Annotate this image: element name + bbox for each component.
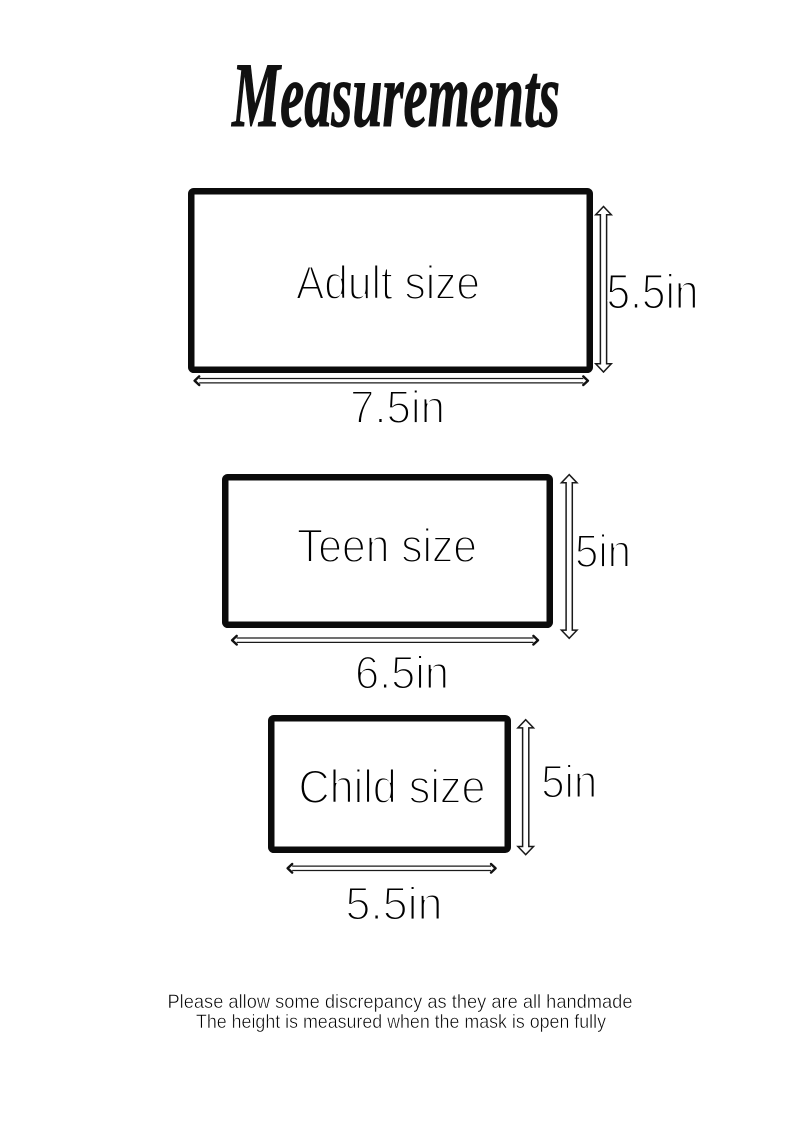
svg-text:5.5in: 5.5in bbox=[346, 878, 443, 930]
svg-text:5.5in: 5.5in bbox=[607, 266, 699, 320]
svg-text:Measurements: Measurements bbox=[231, 44, 560, 146]
svg-text:5in: 5in bbox=[541, 756, 597, 808]
svg-text:Please allow some discrepancy: Please allow some discrepancy as they ar… bbox=[168, 991, 633, 1013]
svg-text:7.5in: 7.5in bbox=[350, 381, 445, 433]
svg-text:The height is measured when th: The height is measured when the mask is … bbox=[196, 1011, 606, 1033]
svg-text:Teen size: Teen size bbox=[297, 519, 477, 572]
svg-text:6.5in: 6.5in bbox=[355, 647, 449, 699]
svg-text:Adult size: Adult size bbox=[296, 256, 480, 309]
svg-text:Child size: Child size bbox=[299, 760, 486, 813]
svg-text:5in: 5in bbox=[575, 525, 631, 577]
